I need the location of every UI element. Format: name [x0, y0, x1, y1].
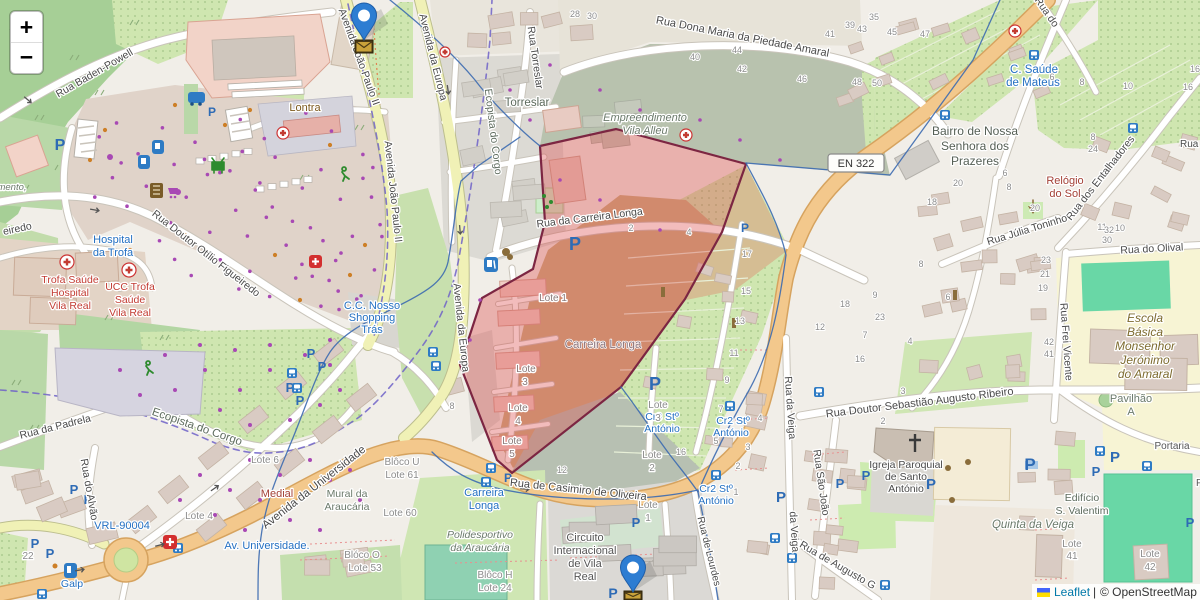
svg-text:Shopping: Shopping — [349, 312, 396, 324]
svg-text:Empreendimento: Empreendimento — [603, 112, 687, 124]
svg-text:28: 28 — [570, 9, 580, 19]
svg-text:2: 2 — [649, 463, 655, 474]
svg-text:Hospital: Hospital — [93, 234, 133, 246]
svg-text:18: 18 — [927, 197, 937, 207]
svg-text:2: 2 — [880, 416, 885, 426]
svg-text:20: 20 — [953, 178, 963, 188]
svg-text:Blôco H: Blôco H — [477, 570, 512, 581]
svg-text:P: P — [926, 476, 936, 493]
svg-text:3: 3 — [522, 377, 528, 388]
svg-text:24: 24 — [1088, 144, 1098, 154]
svg-text:VRL-90004: VRL-90004 — [94, 520, 150, 532]
svg-text:4: 4 — [757, 413, 762, 423]
svg-text:P: P — [608, 585, 617, 600]
svg-text:43: 43 — [857, 24, 867, 34]
svg-text:Medial: Medial — [261, 488, 293, 500]
svg-text:5: 5 — [509, 449, 515, 460]
svg-text:Trás: Trás — [361, 324, 383, 336]
svg-text:8: 8 — [1079, 77, 1084, 87]
svg-text:Cr2 Stº: Cr2 Stº — [699, 483, 733, 495]
svg-text:30: 30 — [1102, 235, 1112, 245]
svg-text:P: P — [649, 374, 661, 394]
svg-text:P: P — [307, 346, 316, 361]
svg-text:Blóco O: Blóco O — [344, 550, 380, 561]
svg-text:de Santo: de Santo — [885, 471, 927, 483]
svg-text:P: P — [1092, 464, 1101, 479]
svg-text:8: 8 — [1090, 132, 1095, 142]
svg-text:Prazeres: Prazeres — [951, 154, 999, 168]
svg-text:Lote: Lote — [516, 364, 536, 375]
svg-text:Jerónimo: Jerónimo — [1119, 353, 1170, 367]
svg-text:+: + — [20, 14, 33, 40]
svg-text:António: António — [644, 423, 680, 435]
svg-text:16: 16 — [855, 354, 865, 364]
svg-text:da Araucária: da Araucária — [450, 542, 509, 554]
svg-text:P: P — [318, 359, 327, 374]
svg-text:UCC Trofa: UCC Trofa — [105, 281, 155, 293]
svg-text:30: 30 — [587, 11, 597, 21]
svg-text:Vila Real: Vila Real — [109, 307, 151, 319]
svg-text:Portaria: Portaria — [1154, 441, 1189, 452]
svg-text:4: 4 — [686, 227, 691, 237]
svg-text:Lote: Lote — [1140, 549, 1160, 560]
svg-text:Lote 61: Lote 61 — [385, 470, 419, 481]
svg-text:António: António — [698, 495, 734, 507]
svg-text:A: A — [1127, 406, 1135, 418]
svg-text:9: 9 — [724, 375, 729, 385]
svg-text:Lote 6: Lote 6 — [251, 455, 279, 466]
svg-text:15: 15 — [741, 286, 751, 296]
svg-text:Galp: Galp — [61, 578, 83, 590]
svg-text:C.C. Nosso: C.C. Nosso — [344, 300, 400, 312]
svg-text:5: 5 — [713, 436, 718, 446]
svg-text:Lote 53: Lote 53 — [348, 563, 382, 574]
svg-text:41: 41 — [825, 29, 835, 39]
svg-text:Lote: Lote — [638, 500, 658, 511]
svg-text:8: 8 — [918, 259, 923, 269]
svg-text:40: 40 — [690, 52, 700, 62]
svg-text:23: 23 — [1041, 255, 1051, 265]
svg-text:4: 4 — [515, 416, 521, 427]
svg-text:42: 42 — [1044, 337, 1054, 347]
svg-text:47: 47 — [920, 29, 930, 39]
svg-text:P: P — [208, 105, 216, 119]
svg-text:10: 10 — [1115, 223, 1125, 233]
svg-text:Bairro de Nossa: Bairro de Nossa — [932, 124, 1018, 138]
svg-text:20: 20 — [1030, 203, 1040, 213]
svg-text:Saúde: Saúde — [115, 294, 146, 306]
svg-text:P: P — [632, 515, 641, 530]
svg-text:Lote: Lote — [1062, 539, 1082, 550]
svg-text:P: P — [296, 393, 305, 408]
svg-text:P: P — [1110, 449, 1120, 466]
svg-text:Pavilhão: Pavilhão — [1110, 393, 1152, 405]
svg-text:Carreira: Carreira — [464, 487, 505, 499]
svg-text:12: 12 — [557, 465, 567, 475]
svg-text:Lontra: Lontra — [289, 102, 321, 114]
svg-text:2: 2 — [628, 223, 633, 233]
svg-text:P: P — [46, 546, 55, 561]
svg-text:P: P — [776, 489, 786, 506]
svg-text:42: 42 — [737, 64, 747, 74]
svg-text:Relógio: Relógio — [1046, 175, 1083, 187]
svg-text:23: 23 — [875, 312, 885, 322]
svg-text:Lote 60: Lote 60 — [383, 508, 417, 519]
svg-text:P: P — [31, 536, 40, 551]
svg-text:do Amaral: do Amaral — [1118, 367, 1173, 381]
svg-text:de Vila: de Vila — [568, 558, 602, 570]
svg-text:Real: Real — [574, 571, 597, 583]
svg-text:Cr2 Stº: Cr2 Stº — [716, 415, 750, 427]
svg-text:Lote 24: Lote 24 — [478, 583, 512, 594]
svg-text:do Sol: do Sol — [1049, 188, 1080, 200]
svg-text:Lote 1: Lote 1 — [539, 293, 567, 304]
svg-text:P: P — [569, 234, 581, 254]
svg-text:da Trofa: da Trofa — [93, 247, 134, 259]
svg-text:© OpenStreetMap: © OpenStreetMap — [1100, 585, 1197, 599]
svg-text:Edifício: Edifício — [1065, 492, 1100, 504]
svg-text:Monsenhor: Monsenhor — [1115, 339, 1176, 353]
svg-text:Trofa Saúde: Trofa Saúde — [41, 274, 99, 286]
svg-text:50: 50 — [872, 78, 882, 88]
svg-text:Igreja Paroquial: Igreja Paroquial — [869, 459, 943, 471]
svg-text:16: 16 — [1183, 82, 1193, 92]
svg-text:21: 21 — [1040, 269, 1050, 279]
svg-text:17: 17 — [742, 249, 752, 259]
svg-text:39: 39 — [845, 20, 855, 30]
svg-text:9: 9 — [872, 290, 877, 300]
svg-text:46: 46 — [797, 74, 807, 84]
svg-text:Escola: Escola — [1127, 311, 1163, 325]
svg-text:Mural da: Mural da — [327, 488, 368, 500]
svg-text:Lote: Lote — [642, 450, 662, 461]
svg-text:16: 16 — [1190, 64, 1200, 74]
svg-text:48: 48 — [852, 77, 862, 87]
svg-text:P: P — [1024, 455, 1035, 474]
svg-text:−: − — [20, 44, 33, 70]
svg-text:19: 19 — [1038, 283, 1048, 293]
svg-text:Longa: Longa — [469, 500, 500, 512]
svg-text:4: 4 — [907, 336, 912, 346]
svg-text:P: P — [55, 137, 66, 154]
svg-text:12: 12 — [815, 322, 825, 332]
svg-text:8: 8 — [449, 401, 454, 411]
svg-text:1: 1 — [645, 513, 651, 524]
svg-text:Por: Por — [1196, 478, 1200, 489]
svg-text:Vila Alleu: Vila Alleu — [622, 125, 667, 137]
svg-text:Senhora dos: Senhora dos — [941, 139, 1009, 153]
svg-text:10: 10 — [1123, 81, 1133, 91]
svg-text:mento,: mento, — [0, 182, 27, 193]
svg-text:44: 44 — [732, 45, 742, 55]
svg-text:11: 11 — [729, 348, 738, 358]
svg-text:Internacional: Internacional — [554, 545, 617, 557]
svg-text:Lote: Lote — [508, 403, 528, 414]
svg-text:P: P — [70, 482, 79, 497]
svg-text:Circuito: Circuito — [566, 532, 603, 544]
svg-text:Lote: Lote — [502, 436, 522, 447]
svg-text:S. Valentim: S. Valentim — [1056, 505, 1109, 517]
svg-text:Av. Universidade.: Av. Universidade. — [224, 540, 309, 552]
svg-text:16: 16 — [676, 447, 686, 457]
svg-text:P: P — [741, 221, 749, 235]
svg-text:7: 7 — [862, 330, 867, 340]
svg-text:Lote: Lote — [648, 400, 668, 411]
svg-text:Carreira Longa: Carreira Longa — [565, 339, 642, 351]
svg-text:3: 3 — [900, 386, 905, 396]
svg-text:41: 41 — [1044, 349, 1054, 359]
svg-text:Quinta da Veiga: Quinta da Veiga — [992, 519, 1074, 531]
svg-text:18: 18 — [840, 299, 850, 309]
svg-text:6: 6 — [1049, 72, 1054, 82]
svg-text:32: 32 — [1104, 225, 1114, 235]
svg-text:7: 7 — [718, 404, 723, 414]
svg-text:Torreslar: Torreslar — [505, 97, 550, 109]
svg-text:António: António — [888, 483, 924, 495]
svg-text:P: P — [836, 476, 845, 491]
svg-text:EN 322: EN 322 — [838, 158, 875, 170]
svg-text:António: António — [713, 427, 749, 439]
svg-text:Polidesportivo: Polidesportivo — [447, 529, 513, 541]
svg-text:Blôco U: Blôco U — [384, 457, 419, 468]
svg-text:Leaflet: Leaflet — [1054, 585, 1091, 599]
svg-text:6: 6 — [1002, 168, 1007, 178]
svg-text:P: P — [1186, 515, 1195, 530]
svg-text:Vila Real: Vila Real — [49, 300, 91, 312]
svg-text:Básica: Básica — [1127, 325, 1163, 339]
svg-text:Araucária: Araucária — [325, 501, 370, 513]
svg-text:6: 6 — [945, 292, 950, 302]
svg-text:35: 35 — [869, 12, 879, 22]
svg-text:3: 3 — [745, 442, 750, 452]
svg-text:42: 42 — [1144, 562, 1156, 573]
svg-text:13: 13 — [735, 316, 745, 326]
svg-text:41: 41 — [1066, 551, 1078, 562]
svg-text:Cr3 Stº: Cr3 Stº — [645, 411, 679, 423]
svg-text:|: | — [1093, 585, 1096, 599]
svg-text:Lote 4: Lote 4 — [185, 511, 213, 522]
svg-text:2: 2 — [735, 461, 740, 471]
svg-text:22: 22 — [22, 551, 34, 562]
svg-text:45: 45 — [887, 27, 897, 37]
svg-text:Hospital: Hospital — [51, 287, 89, 299]
svg-text:8: 8 — [1006, 182, 1011, 192]
svg-text:Rua Si: Rua Si — [1180, 139, 1200, 150]
svg-text:1: 1 — [733, 487, 738, 497]
svg-text:3: 3 — [655, 413, 661, 424]
